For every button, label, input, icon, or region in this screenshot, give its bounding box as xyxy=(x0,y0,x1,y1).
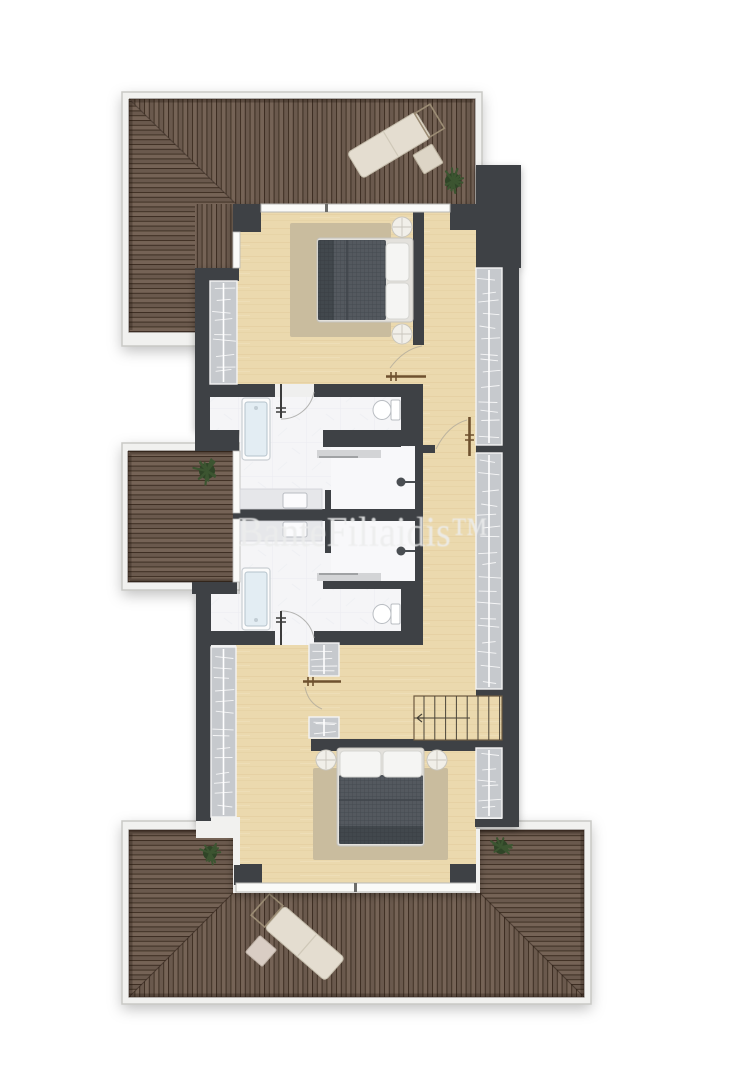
svg-text:BanteFiliaidis™: BanteFiliaidis™ xyxy=(238,510,488,556)
